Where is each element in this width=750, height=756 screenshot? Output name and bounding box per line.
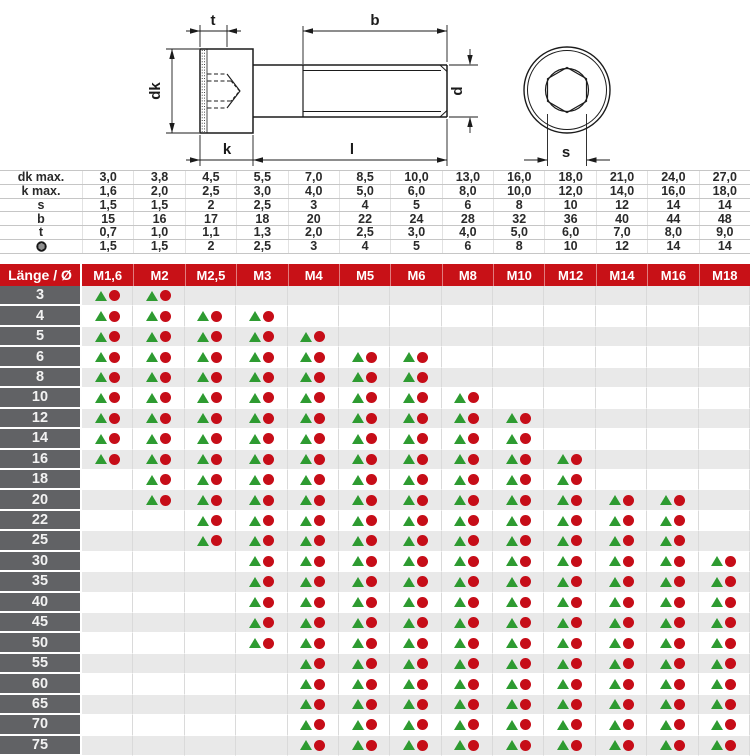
dimension-value: 10,0 — [390, 171, 441, 184]
availability-cell — [647, 388, 698, 408]
dot-marker — [314, 495, 325, 506]
availability-cell — [288, 470, 339, 490]
triangle-marker — [300, 679, 312, 689]
dot-marker — [417, 372, 428, 383]
availability-cell — [339, 633, 390, 653]
availability-cell — [442, 470, 493, 490]
availability-cell — [647, 327, 698, 347]
dot-marker — [417, 699, 428, 710]
availability-cell — [493, 347, 544, 367]
matrix-corner-label: Länge / Ø — [0, 264, 82, 286]
availability-cell — [390, 511, 441, 531]
dot-marker — [211, 413, 222, 424]
dot-marker — [725, 638, 736, 649]
availability-cell — [647, 368, 698, 388]
triangle-marker — [300, 475, 312, 485]
dot-marker — [109, 413, 120, 424]
size-column-header: M8 — [442, 264, 493, 286]
availability-cell — [133, 593, 184, 613]
dot-marker — [725, 617, 736, 628]
availability-cell — [133, 633, 184, 653]
triangle-marker — [660, 597, 672, 607]
availability-cell — [647, 429, 698, 449]
triangle-marker — [454, 659, 466, 669]
dot-marker — [314, 740, 325, 751]
availability-cell — [339, 736, 390, 756]
availability-cell — [236, 633, 287, 653]
dimension-value: 6,0 — [544, 226, 595, 239]
dot-marker — [725, 719, 736, 730]
dimension-value: 44 — [647, 212, 698, 225]
availability-cell — [185, 654, 236, 674]
availability-cell — [493, 633, 544, 653]
triangle-marker — [249, 454, 261, 464]
dot-marker — [674, 719, 685, 730]
triangle-marker — [609, 556, 621, 566]
dot-marker — [520, 638, 531, 649]
availability-cell — [596, 593, 647, 613]
availability-cell — [596, 388, 647, 408]
availability-cell — [236, 511, 287, 531]
triangle-marker — [454, 413, 466, 423]
dot-marker — [725, 699, 736, 710]
dot-marker — [366, 495, 377, 506]
availability-cell — [339, 654, 390, 674]
dot-marker — [468, 638, 479, 649]
triangle-marker — [609, 495, 621, 505]
availability-cell — [339, 409, 390, 429]
triangle-marker — [300, 434, 312, 444]
availability-cell — [647, 715, 698, 735]
dot-marker — [674, 740, 685, 751]
dimension-value: 48 — [699, 212, 750, 225]
triangle-marker — [403, 597, 415, 607]
availability-cell — [544, 633, 595, 653]
dot-marker — [211, 474, 222, 485]
size-column-header: M16 — [647, 264, 698, 286]
availability-cell — [596, 674, 647, 694]
dimension-label: k max. — [0, 185, 82, 198]
dot-marker — [520, 617, 531, 628]
triangle-marker — [557, 699, 569, 709]
availability-cell — [288, 593, 339, 613]
dot-marker — [571, 740, 582, 751]
availability-cell — [647, 633, 698, 653]
availability-table: 3456810121416182022253035404550556065707… — [0, 286, 750, 756]
dot-marker — [571, 535, 582, 546]
availability-cell — [390, 409, 441, 429]
triangle-marker — [506, 413, 518, 423]
dot-marker — [314, 331, 325, 342]
triangle-marker — [352, 659, 364, 669]
dimension-value: 10 — [544, 240, 595, 253]
triangle-marker — [711, 577, 723, 587]
table-row: 8 — [0, 368, 750, 388]
triangle-marker — [146, 434, 158, 444]
triangle-marker — [352, 699, 364, 709]
triangle-marker — [95, 372, 107, 382]
dimension-value: 14 — [699, 199, 750, 212]
availability-cell — [133, 613, 184, 633]
dot-marker — [468, 413, 479, 424]
dimension-value: 40 — [596, 212, 647, 225]
dot-marker — [314, 699, 325, 710]
dot-marker — [674, 638, 685, 649]
dot-marker — [160, 413, 171, 424]
availability-cell — [82, 450, 133, 470]
dot-marker — [366, 679, 377, 690]
dimension-value: 14,0 — [596, 185, 647, 198]
dot-marker — [160, 352, 171, 363]
availability-cell — [133, 715, 184, 735]
triangle-marker — [352, 495, 364, 505]
triangle-marker — [300, 740, 312, 750]
dimension-label — [0, 240, 82, 253]
availability-cell — [133, 736, 184, 756]
availability-cell — [647, 552, 698, 572]
availability-cell — [390, 388, 441, 408]
dot-marker — [725, 556, 736, 567]
triangle-marker — [146, 352, 158, 362]
triangle-marker — [197, 475, 209, 485]
availability-cell — [236, 409, 287, 429]
triangle-marker — [352, 740, 364, 750]
triangle-marker — [454, 618, 466, 628]
dot-marker — [314, 413, 325, 424]
dimension-value: 5,5 — [236, 171, 287, 184]
dimension-row: s1,51,522,53456810121414 — [0, 199, 750, 213]
dot-marker — [571, 474, 582, 485]
dimension-value: 8,0 — [647, 226, 698, 239]
dot-marker — [109, 352, 120, 363]
dot-marker — [674, 495, 685, 506]
triangle-marker — [506, 638, 518, 648]
dot-marker — [468, 433, 479, 444]
availability-cell — [390, 429, 441, 449]
availability-cell — [699, 633, 750, 653]
availability-cell — [596, 572, 647, 592]
triangle-marker — [454, 577, 466, 587]
dot-marker — [109, 433, 120, 444]
availability-cell — [544, 409, 595, 429]
table-row: 18 — [0, 470, 750, 490]
dimension-value: 17 — [185, 212, 236, 225]
length-row-label: 18 — [0, 470, 82, 490]
dimension-row: dk max.3,03,84,55,57,08,510,013,016,018,… — [0, 171, 750, 185]
triangle-marker — [249, 536, 261, 546]
dot-marker — [211, 372, 222, 383]
table-row: 20 — [0, 490, 750, 510]
availability-cell — [133, 450, 184, 470]
dot-marker — [417, 556, 428, 567]
availability-cell — [493, 552, 544, 572]
availability-cell — [288, 327, 339, 347]
dimension-value: 16,0 — [493, 171, 544, 184]
dot-marker — [263, 392, 274, 403]
availability-cell — [288, 511, 339, 531]
table-row: 6 — [0, 347, 750, 367]
availability-cell — [185, 674, 236, 694]
triangle-marker — [352, 679, 364, 689]
length-row-label: 60 — [0, 674, 82, 694]
dot-marker — [674, 576, 685, 587]
availability-cell — [442, 450, 493, 470]
triangle-marker — [711, 638, 723, 648]
availability-cell — [236, 429, 287, 449]
dimension-label: b — [0, 212, 82, 225]
dot-marker — [417, 740, 428, 751]
dimension-value: 2 — [185, 199, 236, 212]
triangle-marker — [300, 577, 312, 587]
dot-marker — [674, 617, 685, 628]
triangle-marker — [249, 352, 261, 362]
triangle-marker — [660, 577, 672, 587]
length-row-label: 45 — [0, 613, 82, 633]
table-row: 35 — [0, 572, 750, 592]
availability-cell — [493, 715, 544, 735]
dot-marker — [160, 372, 171, 383]
length-row-label: 65 — [0, 695, 82, 715]
availability-cell — [339, 593, 390, 613]
dimension-value: 12,0 — [544, 185, 595, 198]
screw-side-view — [200, 49, 447, 133]
table-row: 22 — [0, 511, 750, 531]
availability-cell — [133, 572, 184, 592]
dimension-row: 1,51,522,53456810121414 — [0, 240, 750, 254]
availability-cell — [133, 531, 184, 551]
dimension-value: 8 — [493, 199, 544, 212]
dot-marker — [417, 719, 428, 730]
availability-cell — [442, 327, 493, 347]
availability-cell — [442, 674, 493, 694]
triangle-marker — [454, 699, 466, 709]
availability-cell — [596, 695, 647, 715]
dot-marker — [571, 719, 582, 730]
table-row: 12 — [0, 409, 750, 429]
dot-marker — [468, 699, 479, 710]
dot-marker — [211, 495, 222, 506]
dot-marker — [366, 658, 377, 669]
triangle-marker — [454, 536, 466, 546]
triangle-marker — [300, 454, 312, 464]
triangle-marker — [557, 597, 569, 607]
table-row: 25 — [0, 531, 750, 551]
dot-marker — [417, 576, 428, 587]
dot-marker — [520, 699, 531, 710]
dot-marker — [674, 515, 685, 526]
availability-cell — [493, 368, 544, 388]
triangle-marker — [506, 536, 518, 546]
triangle-marker — [403, 475, 415, 485]
triangle-marker — [660, 516, 672, 526]
triangle-marker — [352, 556, 364, 566]
triangle-marker — [352, 372, 364, 382]
availability-cell — [339, 388, 390, 408]
availability-cell — [390, 470, 441, 490]
dimension-value: 36 — [544, 212, 595, 225]
triangle-marker — [660, 618, 672, 628]
hex-socket-icon — [36, 241, 47, 252]
triangle-marker — [197, 536, 209, 546]
availability-cell — [596, 511, 647, 531]
availability-cell — [133, 695, 184, 715]
availability-cell — [647, 674, 698, 694]
availability-cell — [699, 593, 750, 613]
triangle-marker — [300, 556, 312, 566]
availability-cell — [596, 654, 647, 674]
availability-cell — [544, 470, 595, 490]
triangle-marker — [454, 597, 466, 607]
size-column-header: M4 — [288, 264, 339, 286]
availability-cell — [699, 450, 750, 470]
availability-cell — [133, 552, 184, 572]
size-column-header: M2 — [133, 264, 184, 286]
availability-cell — [236, 306, 287, 326]
availability-cell — [390, 674, 441, 694]
dot-marker — [520, 658, 531, 669]
availability-cell — [596, 286, 647, 306]
dot-marker — [263, 413, 274, 424]
dot-marker — [623, 679, 634, 690]
availability-cell — [442, 593, 493, 613]
dot-marker — [366, 515, 377, 526]
triangle-marker — [506, 495, 518, 505]
triangle-marker — [249, 413, 261, 423]
availability-cell — [236, 674, 287, 694]
dot-marker — [623, 495, 634, 506]
availability-cell — [544, 531, 595, 551]
availability-cell — [339, 613, 390, 633]
dot-marker — [263, 454, 274, 465]
triangle-marker — [660, 699, 672, 709]
size-column-header: M10 — [493, 264, 544, 286]
availability-cell — [596, 613, 647, 633]
dimension-value: 28 — [442, 212, 493, 225]
triangle-marker — [506, 516, 518, 526]
dot-marker — [366, 556, 377, 567]
triangle-marker — [95, 332, 107, 342]
availability-cell — [236, 388, 287, 408]
availability-cell — [699, 368, 750, 388]
availability-cell — [185, 531, 236, 551]
length-row-label: 4 — [0, 306, 82, 326]
length-row-label: 40 — [0, 593, 82, 613]
dot-marker — [520, 597, 531, 608]
triangle-marker — [352, 352, 364, 362]
dot-marker — [520, 740, 531, 751]
dot-marker — [674, 699, 685, 710]
size-header-row: Länge / ØM1,6M2M2,5M3M4M5M6M8M10M12M14M1… — [0, 264, 750, 286]
dimension-value: 1,3 — [236, 226, 287, 239]
triangle-marker — [249, 597, 261, 607]
availability-cell — [82, 633, 133, 653]
size-column-header: M18 — [699, 264, 750, 286]
availability-cell — [339, 490, 390, 510]
availability-cell — [339, 552, 390, 572]
dot-marker — [263, 372, 274, 383]
availability-cell — [288, 347, 339, 367]
triangle-marker — [660, 679, 672, 689]
triangle-marker — [609, 516, 621, 526]
triangle-marker — [711, 740, 723, 750]
dot-marker — [468, 392, 479, 403]
dot-marker — [623, 597, 634, 608]
size-column-header: M12 — [544, 264, 595, 286]
availability-cell — [493, 654, 544, 674]
availability-cell — [699, 388, 750, 408]
availability-cell — [699, 531, 750, 551]
dimension-value: 1,5 — [133, 199, 184, 212]
availability-cell — [288, 368, 339, 388]
dot-marker — [314, 392, 325, 403]
dot-marker — [160, 474, 171, 485]
dot-marker — [263, 617, 274, 628]
triangle-marker — [557, 659, 569, 669]
availability-cell — [339, 429, 390, 449]
triangle-marker — [557, 618, 569, 628]
availability-cell — [442, 552, 493, 572]
dimension-value: 8,0 — [442, 185, 493, 198]
availability-cell — [544, 654, 595, 674]
dot-marker — [211, 535, 222, 546]
availability-cell — [82, 674, 133, 694]
triangle-marker — [146, 393, 158, 403]
dimension-value: 27,0 — [699, 171, 750, 184]
dot-marker — [417, 679, 428, 690]
triangle-marker — [352, 393, 364, 403]
triangle-marker — [249, 393, 261, 403]
triangle-marker — [249, 332, 261, 342]
triangle-marker — [197, 495, 209, 505]
dimension-value: 5 — [390, 199, 441, 212]
triangle-marker — [352, 720, 364, 730]
table-row: 50 — [0, 633, 750, 653]
dimension-value: 7,0 — [288, 171, 339, 184]
dot-marker — [417, 515, 428, 526]
availability-cell — [493, 286, 544, 306]
availability-cell — [185, 286, 236, 306]
dot-marker — [366, 535, 377, 546]
availability-cell — [493, 531, 544, 551]
dot-marker — [520, 679, 531, 690]
dot-marker — [109, 372, 120, 383]
dot-marker — [109, 311, 120, 322]
dot-marker — [571, 495, 582, 506]
dot-marker — [571, 699, 582, 710]
availability-cell — [699, 715, 750, 735]
triangle-marker — [352, 638, 364, 648]
availability-cell — [390, 306, 441, 326]
dot-marker — [211, 352, 222, 363]
dot-marker — [520, 535, 531, 546]
dot-marker — [314, 474, 325, 485]
dimension-value: 18,0 — [699, 185, 750, 198]
dimension-value: 2,5 — [339, 226, 390, 239]
dot-marker — [211, 454, 222, 465]
availability-cell — [596, 347, 647, 367]
availability-cell — [699, 490, 750, 510]
availability-cell — [544, 613, 595, 633]
dimension-row: b15161718202224283236404448 — [0, 212, 750, 226]
dot-marker — [211, 433, 222, 444]
availability-cell — [699, 572, 750, 592]
dimension-label: t — [0, 226, 82, 239]
availability-cell — [493, 429, 544, 449]
dot-marker — [468, 617, 479, 628]
triangle-marker — [146, 475, 158, 485]
dot-marker — [366, 372, 377, 383]
availability-cell — [339, 327, 390, 347]
